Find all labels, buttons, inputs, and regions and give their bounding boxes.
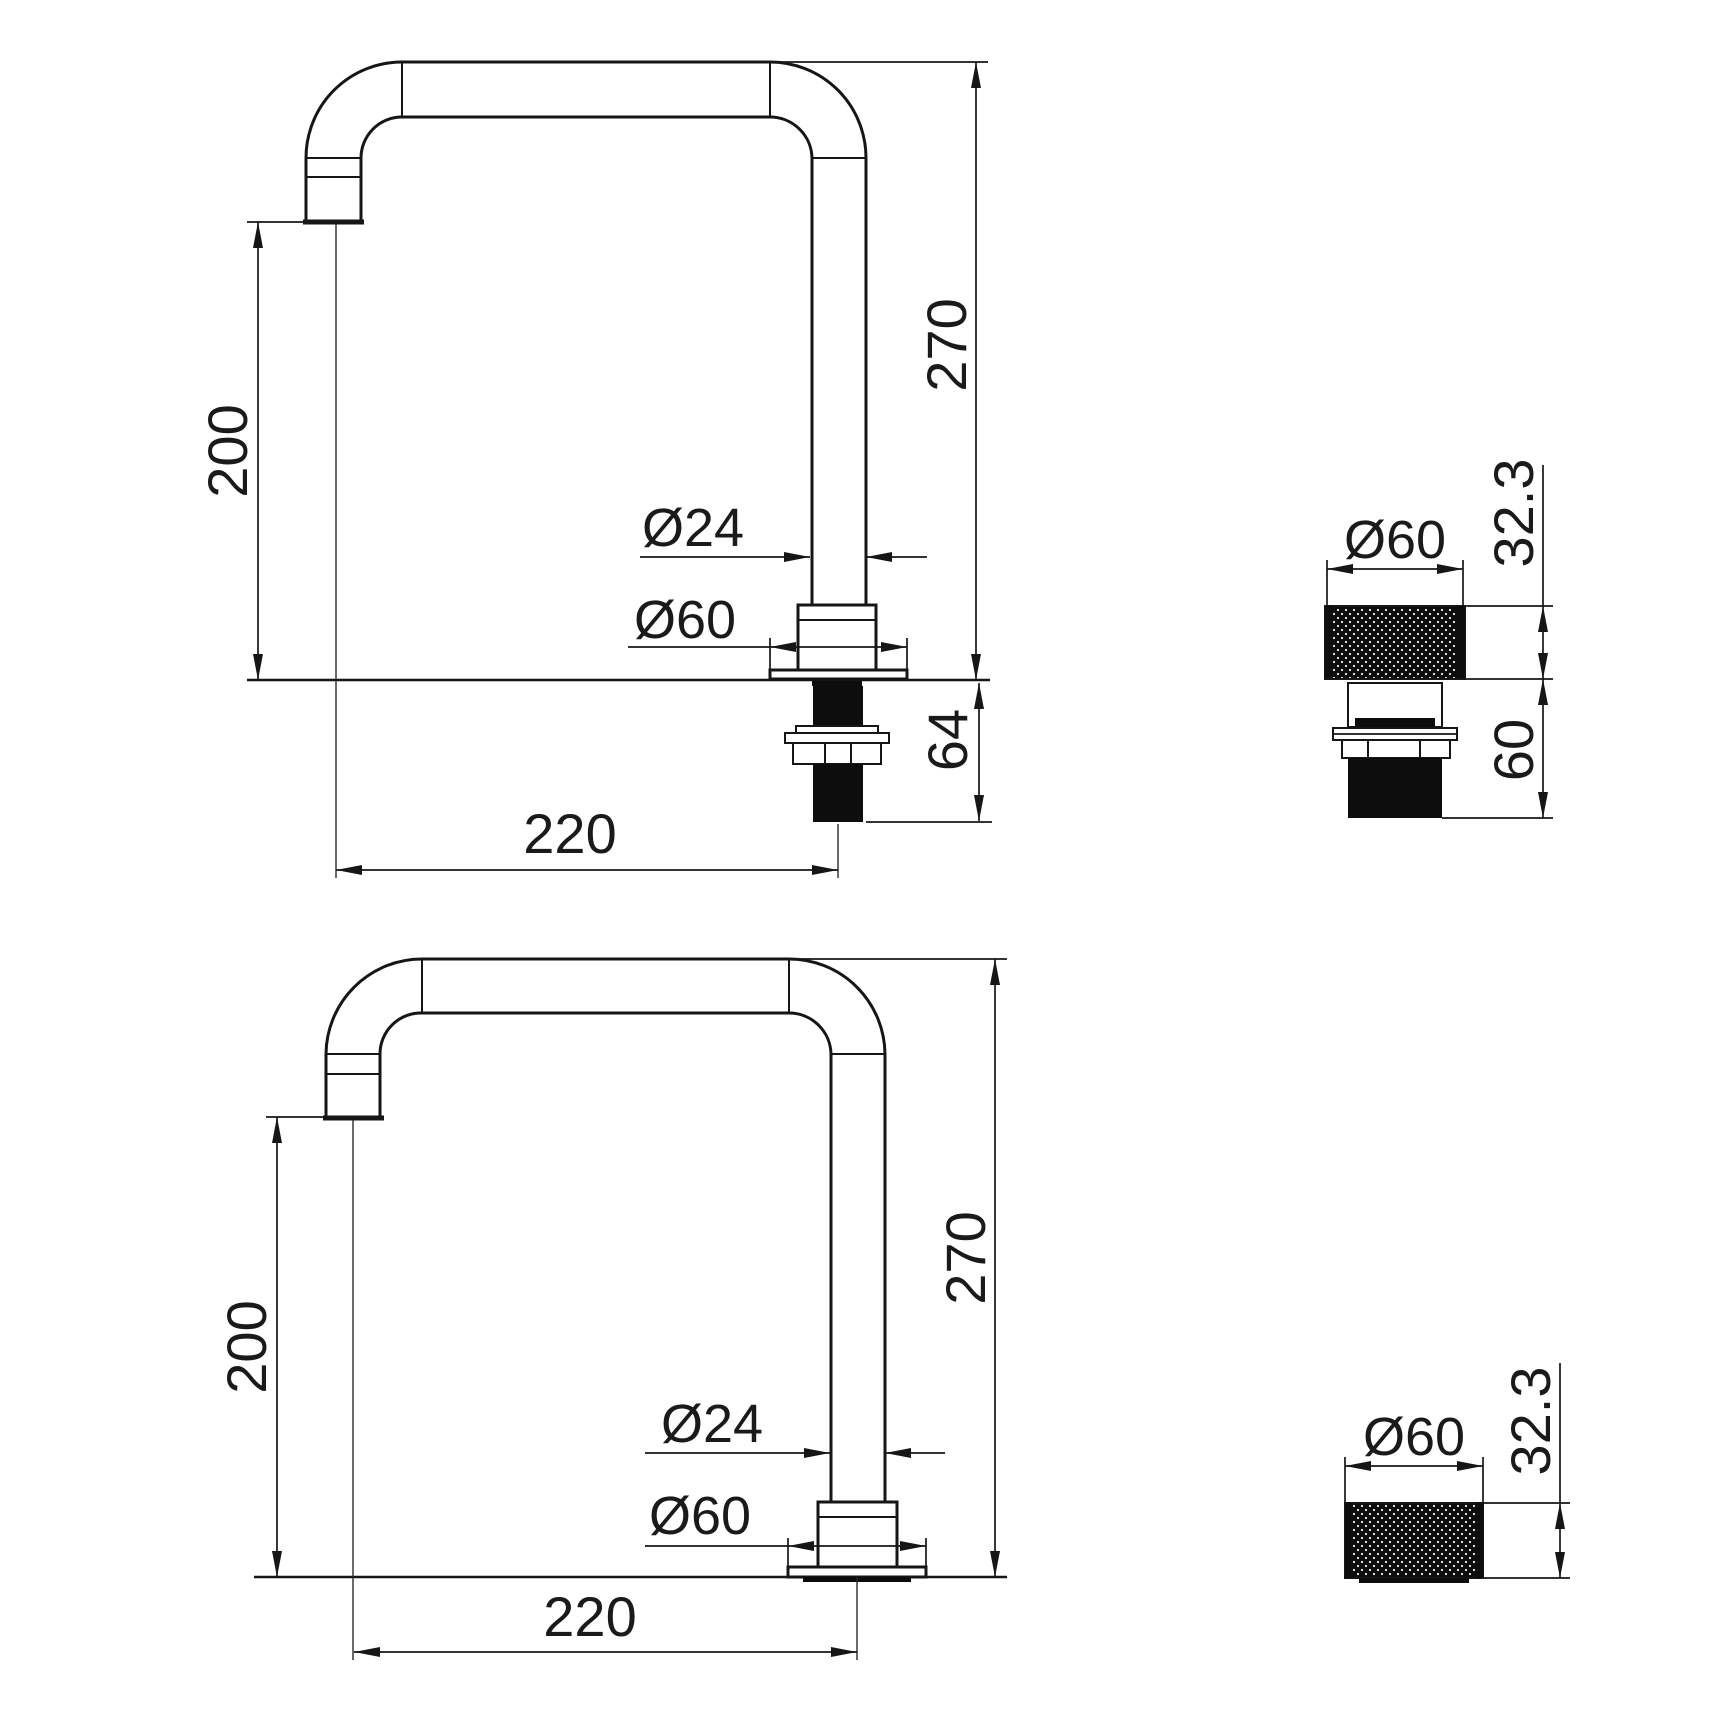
drawing-sheet: 270 200 220 64 Ø24 Ø60 Ø60 — [0, 0, 1733, 1733]
handle-thread — [1348, 758, 1442, 818]
lock-nut — [793, 743, 881, 764]
dim-label-handle-dia: Ø60 — [1344, 510, 1446, 570]
dim-label-cap-323: 32.3 — [1482, 459, 1545, 568]
dim-label-flange-dia: Ø60 — [634, 590, 736, 650]
dim-label-flange-dia: Ø60 — [649, 1486, 751, 1546]
washer-plate — [785, 733, 889, 743]
dim-label-reach-220: 220 — [523, 802, 616, 865]
knurl-edge-right — [1457, 606, 1465, 679]
knurl-edge-right — [1475, 1503, 1483, 1578]
gasket — [812, 681, 862, 686]
handle-nut — [1342, 740, 1450, 758]
dim-label-shank-64: 64 — [916, 709, 979, 771]
knurled-cap — [1325, 606, 1465, 679]
dim-label-clearance-200: 200 — [215, 1300, 278, 1393]
dim-label-height-270: 270 — [934, 1211, 997, 1304]
dim-label-clearance-200: 200 — [196, 404, 259, 497]
knurled-cap — [1345, 1503, 1483, 1578]
threaded-shank-lower — [813, 764, 863, 822]
dim-label-reach-220: 220 — [543, 1585, 636, 1648]
knurl-edge-left — [1325, 606, 1333, 679]
knurl-bottom-lip — [1359, 1578, 1469, 1583]
dim-label-tube-dia: Ø24 — [661, 1394, 763, 1454]
threaded-shank-upper — [813, 686, 863, 727]
washer-step — [796, 726, 878, 733]
packing-band — [1355, 718, 1435, 727]
dim-label-lower-60: 60 — [1482, 719, 1545, 781]
dim-label-handle-dia: Ø60 — [1363, 1407, 1465, 1467]
dim-label-tube-dia: Ø24 — [642, 498, 744, 558]
dim-label-cap-323: 32.3 — [1499, 1367, 1562, 1476]
dim-label-height-270: 270 — [915, 298, 978, 391]
technical-drawing-canvas: 270 200 220 64 Ø24 Ø60 Ø60 — [0, 0, 1733, 1733]
knurl-edge-left — [1345, 1503, 1353, 1578]
